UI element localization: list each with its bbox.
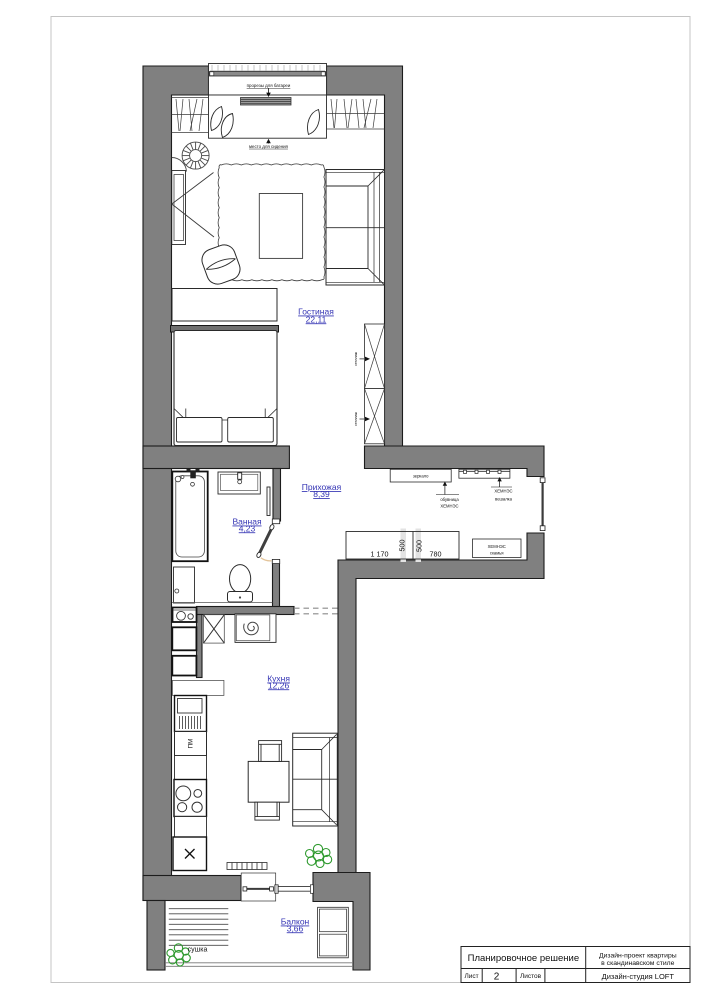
svg-text:Дизайн-проект квартиры: Дизайн-проект квартиры: [599, 952, 677, 960]
svg-text:ХЕМНЭС: ХЕМНЭС: [440, 503, 458, 508]
svg-text:прорезы для батареи: прорезы для батареи: [247, 83, 291, 88]
svg-text:500: 500: [398, 540, 407, 552]
svg-text:ПМ: ПМ: [188, 739, 195, 749]
svg-text:место для сидения: место для сидения: [249, 144, 289, 149]
svg-text:вешалка: вешалка: [495, 497, 513, 502]
svg-text:ХЕМНЭС: ХЕМНЭС: [494, 489, 512, 494]
svg-text:22,11: 22,11: [306, 314, 327, 324]
svg-text:1 170: 1 170: [371, 550, 389, 559]
svg-text:в скандинавском стиле: в скандинавском стиле: [601, 960, 674, 967]
svg-text:500: 500: [415, 540, 424, 552]
svg-text:зеркало: зеркало: [413, 474, 429, 479]
svg-text:ХЕМНЭС: ХЕМНЭС: [488, 544, 506, 549]
svg-text:780: 780: [430, 550, 442, 559]
svg-text:скамья: скамья: [490, 551, 504, 556]
svg-text:сушка: сушка: [188, 946, 208, 953]
svg-text:8,39: 8,39: [313, 489, 330, 499]
svg-text:Планировочное решение: Планировочное решение: [468, 953, 580, 964]
svg-text:12,26: 12,26: [268, 680, 290, 690]
svg-text:Лист: Лист: [465, 973, 479, 980]
svg-text:обувница: обувница: [440, 497, 459, 502]
svg-text:Листов: Листов: [520, 973, 542, 980]
svg-text:стеллаж: стеллаж: [354, 411, 358, 425]
svg-text:3,66: 3,66: [287, 923, 304, 933]
svg-text:2: 2: [494, 972, 500, 983]
svg-text:Дизайн-студия LOFT: Дизайн-студия LOFT: [602, 972, 675, 981]
svg-text:4,23: 4,23: [239, 523, 256, 533]
svg-text:стеллаж: стеллаж: [354, 351, 358, 365]
